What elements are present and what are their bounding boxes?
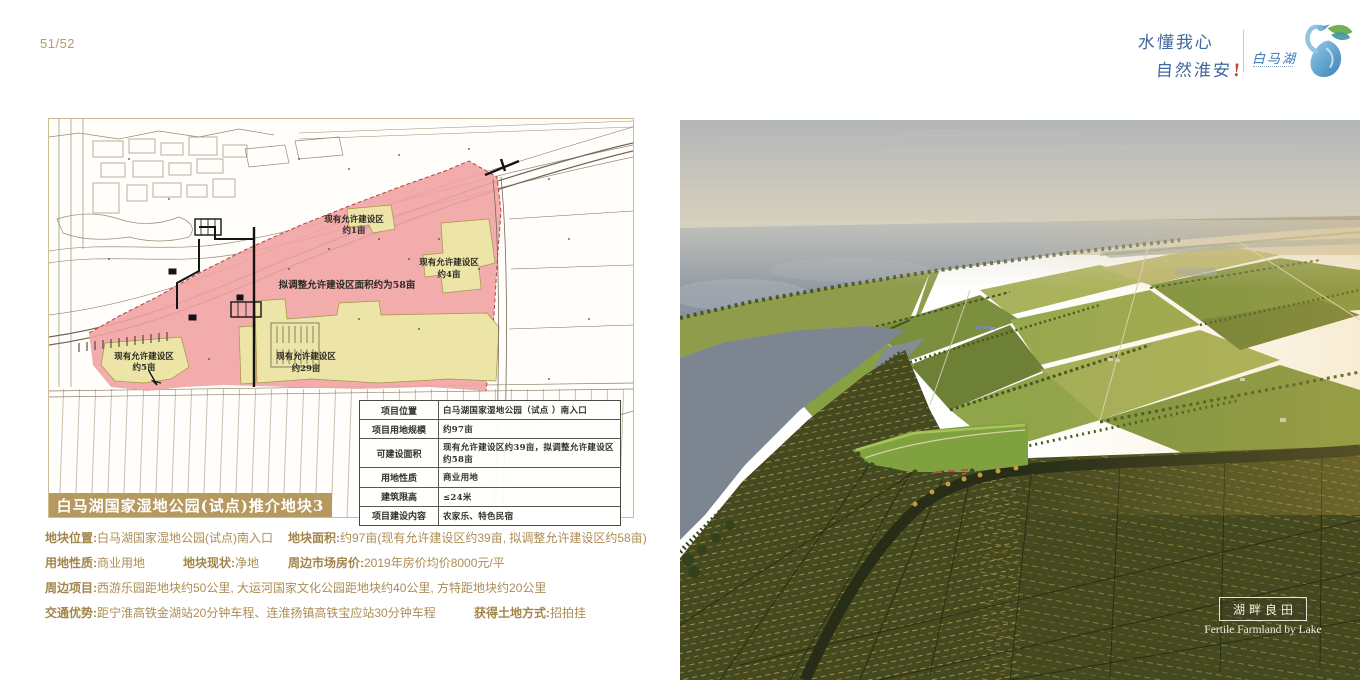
detail-segment: 地块位置:白马湖国家湿地公园(试点)南入口 — [45, 529, 273, 546]
zone-label-1mu-line1: 现有允许建设区 — [324, 214, 384, 225]
site-plan-map: 现有允许建设区 约1亩 现有允许建设区 约4亩 拟调整允许建设区面积约为58亩 … — [48, 118, 634, 518]
details-line2: 用地性质:商业用地 地块现状:净地 周边市场房价:2019年房价均价8000元/… — [45, 554, 665, 579]
swan-waterdrop-logo-icon — [1286, 18, 1356, 88]
table-row: 项目位置 白马湖国家湿地公园（试点 ）南入口 — [360, 401, 620, 419]
detail-label: 地块面积: — [288, 531, 340, 545]
table-row-label: 建筑限高 — [360, 488, 439, 506]
slogan-exclaim: ! — [1232, 61, 1243, 81]
table-row-label: 项目建设内容 — [360, 507, 439, 525]
brand-divider — [1243, 30, 1244, 72]
zone-label-58mu: 拟调整允许建设区面积约为58亩 — [279, 279, 416, 291]
table-row: 项目用地规模 约97亩 — [360, 419, 620, 438]
detail-value: 白马湖国家湿地公园(试点)南入口 — [97, 531, 273, 545]
parcel-title-banner: 白马湖国家湿地公园(试点)推介地块3 — [49, 493, 332, 517]
zone-label-5mu-line2: 约5亩 — [133, 362, 156, 373]
photo-golden-light — [1020, 215, 1360, 515]
table-row-label: 项目位置 — [360, 401, 439, 419]
detail-value: 距宁淮高铁金湖站20分钟车程、连淮扬镇高铁宝应站30分钟车程 — [97, 606, 436, 620]
table-row-value: 现有允许建设区约39亩，拟调整允许建设区约58亩 — [439, 439, 620, 467]
table-row: 用地性质 商业用地 — [360, 467, 620, 486]
detail-label: 获得土地方式: — [474, 606, 550, 620]
detail-segment: 地块现状:净地 — [183, 554, 259, 571]
zone-label-4mu-line1: 现有允许建设区 — [419, 257, 479, 268]
table-row-value: 白马湖国家湿地公园（试点 ）南入口 — [439, 401, 620, 419]
page-number: 51/52 — [40, 36, 75, 51]
detail-segment: 交通优势:距宁淮高铁金湖站20分钟车程、连淮扬镇高铁宝应站30分钟车程 — [45, 604, 436, 621]
zone-label-5mu-line1: 现有允许建设区 — [114, 351, 174, 362]
slogan-line2-text: 自然淮安 — [1155, 61, 1232, 81]
brand-slogan: 水懂我心 自然淮安! — [1138, 28, 1242, 81]
table-row-value: ≤24米 — [439, 488, 620, 506]
aerial-photo-farmland: 湖畔良田 Fertile Farmland by Lake — [680, 120, 1360, 680]
detail-label: 地块现状: — [183, 556, 235, 570]
slide-page: 51/52 水懂我心 自然淮安! 白马湖 — [0, 0, 1360, 680]
detail-segment: 周边项目:西游乐园距地块约50公里, 大运河国家文化公园距地块约40公里, 方特… — [45, 579, 546, 596]
details-line4: 交通优势:距宁淮高铁金湖站20分钟车程、连淮扬镇高铁宝应站30分钟车程 获得土地… — [45, 604, 665, 629]
aerial-photo-illustration — [680, 120, 1360, 680]
zone-label-29mu-line1: 现有允许建设区 — [276, 351, 336, 362]
table-row-value: 约97亩 — [439, 420, 620, 438]
table-row: 可建设面积 现有允许建设区约39亩，拟调整允许建设区约58亩 — [360, 438, 620, 467]
table-row-label: 用地性质 — [360, 468, 439, 486]
zone-label-4mu-line2: 约4亩 — [438, 269, 461, 280]
zone-label-29mu-line2: 约29亩 — [292, 363, 321, 374]
detail-label: 周边项目: — [45, 581, 97, 595]
slogan-line2: 自然淮安! — [1155, 56, 1243, 81]
detail-label: 周边市场房价: — [288, 556, 364, 570]
detail-value: 净地 — [235, 556, 259, 570]
table-row-label: 可建设面积 — [360, 439, 439, 467]
detail-value: 招拍挂 — [550, 606, 586, 620]
slogan-line1: 水懂我心 — [1137, 28, 1243, 53]
detail-label: 交通优势: — [45, 606, 97, 620]
detail-segment: 周边市场房价:2019年房价均价8000元/平 — [288, 554, 505, 571]
details-line3: 周边项目:西游乐园距地块约50公里, 大运河国家文化公园距地块约40公里, 方特… — [45, 579, 665, 604]
table-row: 建筑限高 ≤24米 — [360, 487, 620, 506]
detail-label: 地块位置: — [45, 531, 97, 545]
detail-segment: 地块面积:约97亩(现有允许建设区约39亩, 拟调整允许建设区约58亩) — [288, 529, 647, 546]
detail-value: 2019年房价均价8000元/平 — [364, 556, 505, 570]
photo-caption-cn: 湖畔良田 — [1219, 597, 1307, 621]
table-row-value: 农家乐、特色民宿 — [439, 507, 620, 525]
project-info-table: 项目位置 白马湖国家湿地公园（试点 ）南入口 项目用地规模 约97亩 可建设面积… — [359, 400, 621, 526]
detail-segment: 获得土地方式:招拍挂 — [474, 604, 586, 621]
detail-value: 商业用地 — [97, 556, 145, 570]
photo-caption-en: Fertile Farmland by Lake — [1170, 624, 1356, 636]
detail-label: 用地性质: — [45, 556, 97, 570]
detail-value: 西游乐园距地块约50公里, 大运河国家文化公园距地块约40公里, 方特距地块约2… — [97, 581, 546, 595]
table-row-label: 项目用地规模 — [360, 420, 439, 438]
table-row-value: 商业用地 — [439, 468, 620, 486]
detail-segment: 用地性质:商业用地 — [45, 554, 145, 571]
parcel-details: 地块位置:白马湖国家湿地公园(试点)南入口 地块面积:约97亩(现有允许建设区约… — [45, 529, 665, 629]
detail-value: 约97亩(现有允许建设区约39亩, 拟调整允许建设区约58亩) — [340, 531, 647, 545]
details-line1: 地块位置:白马湖国家湿地公园(试点)南入口 地块面积:约97亩(现有允许建设区约… — [45, 529, 665, 554]
zone-label-1mu-line2: 约1亩 — [343, 225, 366, 236]
table-row: 项目建设内容 农家乐、特色民宿 — [360, 506, 620, 525]
